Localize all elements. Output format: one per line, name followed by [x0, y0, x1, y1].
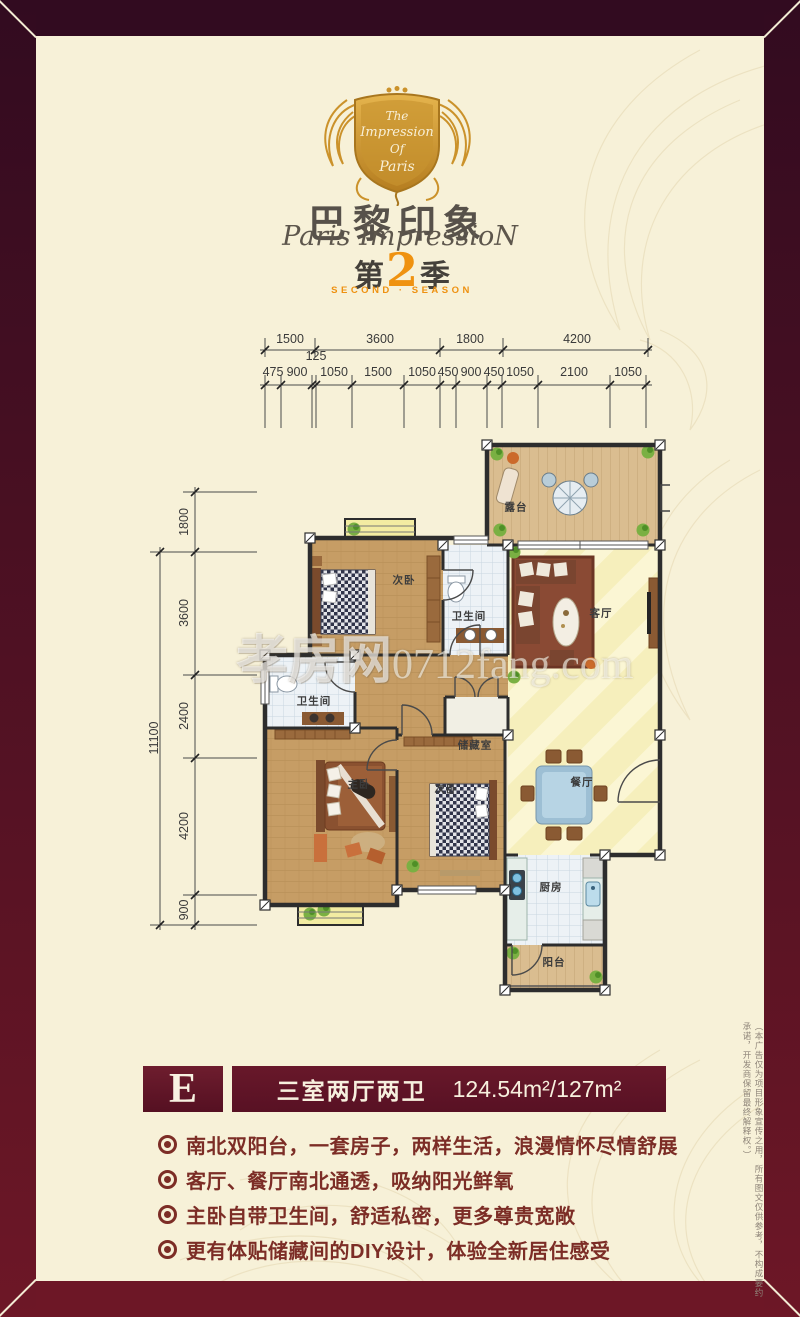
feature-item: 主卧自带卫生间，舒适私密，更多尊贵宽敞	[158, 1200, 678, 1229]
unit-summary-bar: 三室两厅两卫 124.54m²/127m²	[232, 1066, 666, 1112]
dim-top: 4200	[563, 332, 591, 346]
dim-left: 2400	[177, 702, 191, 730]
watermark-cn: 孝房网	[236, 618, 392, 693]
room-label-terrace: 露台	[505, 500, 528, 515]
unit-layout: 三室两厅两卫	[277, 1072, 427, 1106]
feature-item: 南北双阳台，一套房子，两样生活，浪漫情怀尽情舒展	[158, 1130, 678, 1159]
poster-page: The Impression Of Paris 巴黎印象 Paris Impre…	[0, 0, 800, 1317]
dim-top2: 1050	[320, 365, 348, 379]
crest-line4: Paris	[337, 160, 457, 174]
room-label-kitchen: 厨房	[540, 880, 563, 895]
dim-top: 1500	[276, 332, 304, 346]
dim-left-total: 11100	[147, 722, 161, 755]
dim-top: 1800	[456, 332, 484, 346]
dim-top2: 2100	[560, 365, 588, 379]
dim-top2: 1050	[408, 365, 436, 379]
bullet-icon	[158, 1205, 177, 1224]
room-label-balcony: 阳台	[543, 955, 566, 970]
dim-top2: 475	[263, 365, 284, 379]
season-label-en: SECOND · SEASON	[331, 285, 473, 296]
frame-bottom	[0, 1281, 800, 1317]
crest-line3: Of	[337, 143, 457, 155]
bullet-icon	[158, 1135, 177, 1154]
room-label-bath2: 卫生间	[297, 694, 332, 709]
unit-letter-badge: E	[143, 1066, 223, 1112]
floor-plan	[250, 430, 670, 1020]
disclaimer-text: （本广告仅为项目形象宣传之用，所有图文仅供参考，不构成要约承诺，开发商保留最终解…	[741, 1022, 765, 1298]
feature-item: 客厅、餐厅南北通透，吸纳阳光鲜氧	[158, 1165, 678, 1194]
dim-left: 1800	[177, 508, 191, 536]
dim-top2: 1050	[614, 365, 642, 379]
bullet-icon	[158, 1240, 177, 1259]
crest-line1: The	[337, 110, 457, 122]
frame-right	[764, 0, 800, 1317]
frame-left	[0, 0, 36, 1317]
room-label-storage: 储藏室	[458, 738, 493, 753]
dim-top2: 450	[438, 365, 459, 379]
feature-list: 南北双阳台，一套房子，两样生活，浪漫情怀尽情舒展 客厅、餐厅南北通透，吸纳阳光鲜…	[158, 1130, 678, 1264]
dim-top: 3600	[366, 332, 394, 346]
frame-top	[0, 0, 800, 36]
watermark: 孝房网 0712fang.com	[236, 618, 633, 693]
dim-left: 900	[177, 900, 191, 921]
dim-top2: 125	[306, 349, 327, 363]
room-label-bedroom3: 次卧	[435, 782, 458, 797]
dim-top2: 900	[461, 365, 482, 379]
room-label-master: 主卧	[348, 777, 371, 792]
dim-left: 4200	[177, 812, 191, 840]
unit-area: 124.54m²/127m²	[453, 1076, 622, 1103]
room-label-dining: 餐厅	[571, 775, 594, 790]
dim-top2: 450	[484, 365, 505, 379]
dim-top2: 1050	[506, 365, 534, 379]
feature-text: 主卧自带卫生间，舒适私密，更多尊贵宽敞	[186, 1200, 576, 1229]
dim-top2: 900	[287, 365, 308, 379]
feature-text: 客厅、餐厅南北通透，吸纳阳光鲜氧	[186, 1165, 514, 1194]
feature-text: 更有体贴储藏间的DIY设计，体验全新居住感受	[186, 1235, 610, 1264]
unit-letter: E	[169, 1065, 197, 1113]
feature-item: 更有体贴储藏间的DIY设计，体验全新居住感受	[158, 1235, 678, 1264]
bullet-icon	[158, 1170, 177, 1189]
watermark-en: 0712fang.com	[392, 641, 633, 689]
dim-left: 3600	[177, 599, 191, 627]
crest-line2: Impression	[337, 126, 457, 139]
feature-text: 南北双阳台，一套房子，两样生活，浪漫情怀尽情舒展	[186, 1130, 678, 1159]
dim-top2: 1500	[364, 365, 392, 379]
room-label-bedroom2: 次卧	[393, 573, 416, 588]
left-dimension-lines	[145, 475, 260, 935]
